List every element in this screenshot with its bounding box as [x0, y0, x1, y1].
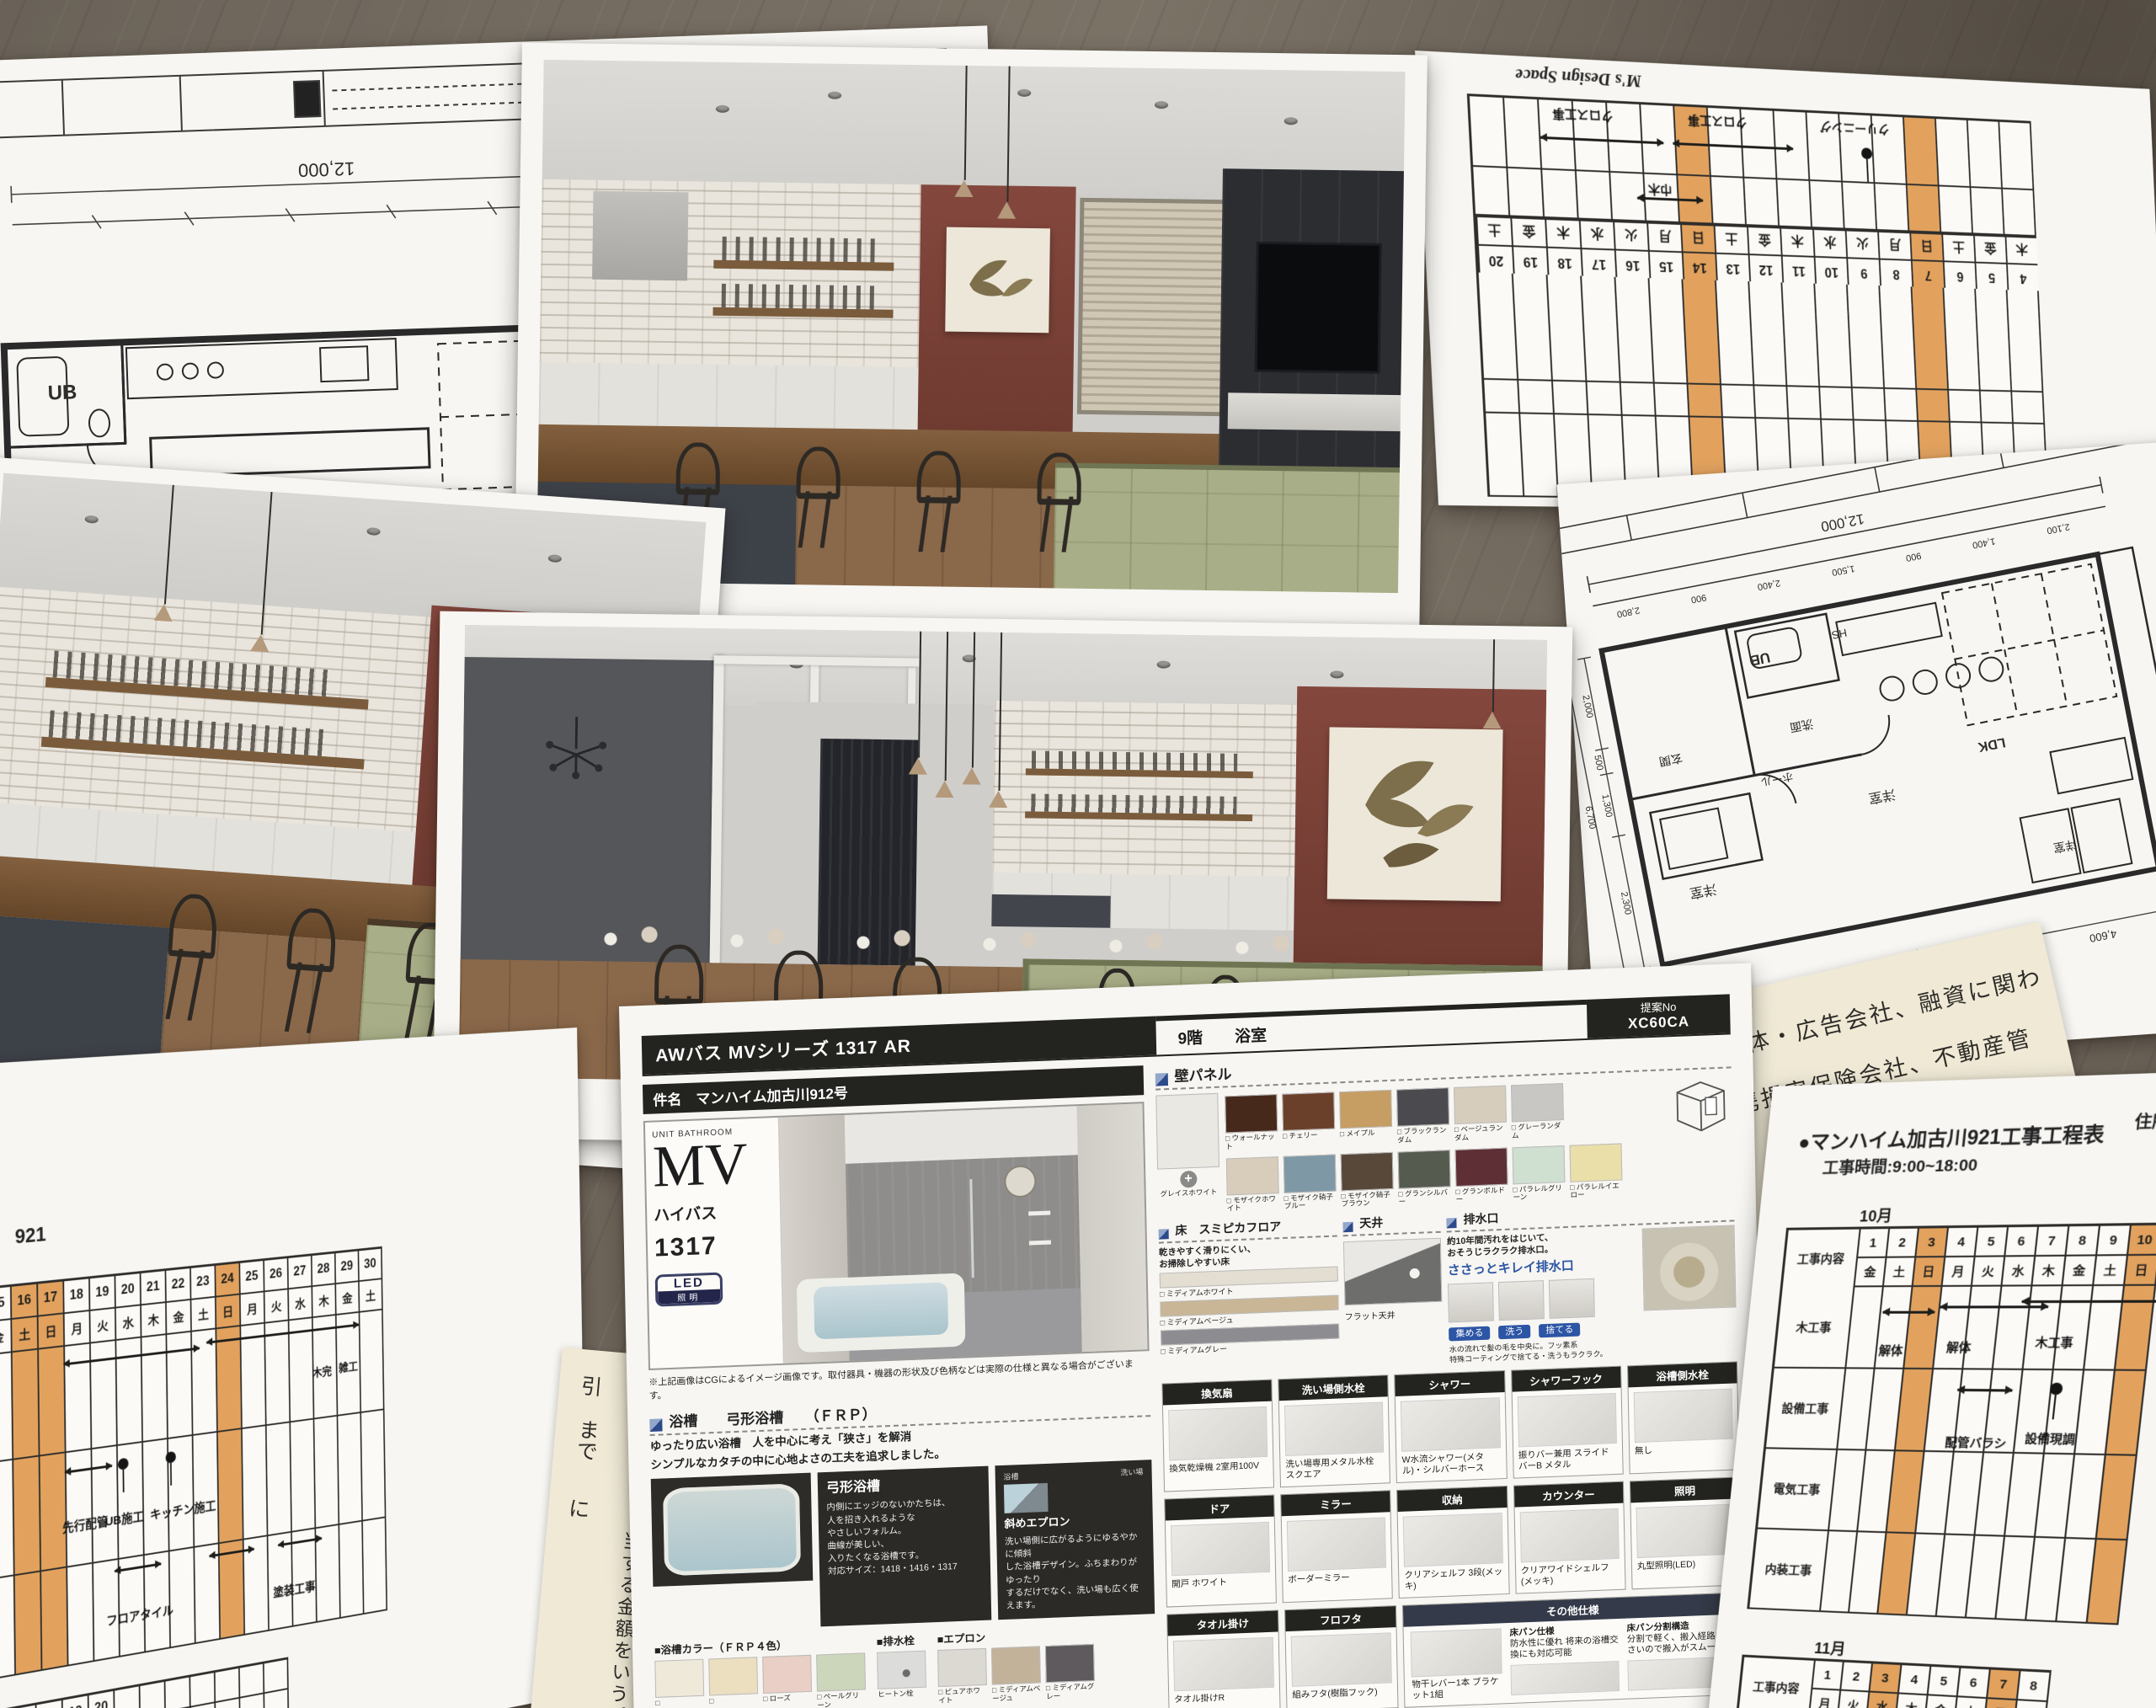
equipment-photo — [1636, 1504, 1735, 1558]
equipment-box: カウンター クリアワイドシェルフ (メッキ) — [1513, 1481, 1625, 1594]
drain-plug-group: ■排水栓 ヒートン栓 — [877, 1631, 927, 1708]
gantt-header-label: 工事内容 — [1738, 1657, 1816, 1708]
room-hs: HS — [1830, 627, 1848, 642]
apron-color-swatch: □ ミディアムグレー — [1045, 1644, 1095, 1701]
svg-text:500: 500 — [1592, 755, 1604, 771]
chandelier-icon — [537, 716, 614, 793]
schedule-hours: 工事時間:9:00~18:00 — [1822, 1152, 1979, 1179]
shelf-bottles — [721, 284, 876, 309]
svg-text:1,400: 1,400 — [1972, 536, 1996, 550]
wall-panel-swatch: □ グレーランダム — [1511, 1083, 1564, 1140]
equipment-box: ドア 開戸 ホワイト — [1164, 1495, 1277, 1608]
gantt-table-october: 15161718192021222324252627282930 金土日月火水木… — [0, 1246, 387, 1681]
room-wash: 洗面 — [1789, 717, 1815, 734]
section-bullet-icon — [649, 1418, 662, 1432]
wall-panel-swatch: □ ウォールナット — [1225, 1094, 1278, 1151]
wall-panel-swatch: □ モザイク硝子ブラウン — [1340, 1151, 1393, 1209]
floor-swatch: □ ミディアムベージュ — [1160, 1295, 1339, 1328]
equipment-photo — [1401, 1397, 1500, 1451]
equipment-photo — [1403, 1513, 1502, 1567]
chair — [1037, 452, 1082, 552]
shelf — [1028, 1240, 1050, 1245]
floor-swatch: □ ミディアムグレー — [1161, 1324, 1340, 1357]
gantt-table-november: 工事内容 12345678 月火水木金土日月 木工事 設備工事 電気工事 フロー… — [1711, 1655, 2052, 1708]
bathtub-color-swatch: □ — [708, 1657, 758, 1708]
schedule-address: 住所:加古川市別 — [2133, 1105, 2156, 1133]
equipment-box: 換気扇 換気乾燥機 2室用100V — [1161, 1379, 1274, 1492]
schedule-title: ●マンハイム加古川921工事工程表 — [1797, 1118, 2106, 1156]
svg-text:4,600: 4,600 — [2089, 927, 2118, 945]
room-ub: UB — [47, 381, 77, 404]
wall-panel-swatch: □ パラレルイエロー — [1569, 1143, 1622, 1200]
other-spec-box: その他仕様 物干レバー1本 ブラケット1組 床パン仕様 防水性に優れ 将来の浴槽… — [1402, 1593, 1744, 1708]
bathtub-color-swatch: □ ローズ — [762, 1655, 812, 1708]
dim-12000: 12,000 — [1820, 510, 1866, 535]
spec-proposal-no: 提案NoXC60CA — [1587, 994, 1731, 1038]
shelf — [1028, 1210, 1050, 1215]
bathroom-axon-icon — [1669, 1073, 1734, 1196]
equipment-photo — [1171, 1522, 1270, 1576]
spec-floor-room: 9階 浴室 — [1155, 1000, 1588, 1055]
leaf-artwork — [945, 227, 1049, 332]
drain-step-photo — [1549, 1278, 1595, 1319]
chair — [796, 446, 841, 548]
wall-panel-swatch: □ メイプル — [1339, 1090, 1392, 1147]
wall-panel-swatch: □ チェリー — [1282, 1092, 1335, 1149]
equipment-photo — [1284, 1401, 1384, 1455]
yellow-strip-fragment: 引 — [580, 1369, 604, 1401]
equipment-box: ミラー ボーダーミラー — [1280, 1490, 1393, 1603]
chair — [163, 893, 219, 1022]
apron-color-swatch: □ ミディアムベージュ — [991, 1647, 1041, 1704]
kitchen-cabinets — [539, 362, 919, 435]
schedule-sheet-bottom-left: 921 15161718192021222324252627282930 金土日… — [0, 1027, 588, 1708]
svg-text:1,300: 1,300 — [1599, 793, 1614, 818]
equipment-photo — [1287, 1517, 1386, 1571]
room-ldk: LDK — [1977, 734, 2007, 754]
mv-brand-block: UNIT BATHROOM MV ハイバス 1317 LED 照明 — [645, 1118, 784, 1369]
svg-text:1,500: 1,500 — [1831, 563, 1855, 578]
equipment-photo — [1517, 1393, 1616, 1447]
equipment-photo — [1173, 1637, 1275, 1692]
mv-logo: MV — [652, 1135, 772, 1196]
shelf-bottles — [722, 237, 877, 262]
chair — [282, 907, 338, 1035]
yellow-strip-fragment: まで — [569, 1417, 603, 1462]
svg-text:6,700: 6,700 — [1583, 805, 1598, 830]
plus-icon: + — [1180, 1171, 1197, 1188]
svg-text:2,000: 2,000 — [1580, 694, 1594, 718]
apron-color-group: ■エプロン □ ピュアホワイト □ ミディアムベージュ — [937, 1625, 1096, 1705]
bathtub-color-swatch: □ ペールグリーン — [816, 1653, 866, 1708]
drainage-section: 排水口 約10年間汚れをはじいて、おそうじラクラク排水口。 ささっとキレイ排水口 — [1446, 1200, 1737, 1365]
tv-board — [1228, 392, 1401, 431]
brand-text-upside-down: M's Design Space — [1515, 64, 1642, 91]
schedule-sheet-top-right-upside-down: M's Design Space 土金木水火月日土金木水火月日土金木 20191… — [1415, 51, 2156, 514]
bathroom-spec-sheet: AWバス MVシリーズ 1317 AR 9階 浴室 提案NoXC60CA 件名 … — [619, 963, 1767, 1708]
leaf-icon — [1334, 736, 1496, 893]
drain-step-photo — [1448, 1283, 1494, 1323]
wall-panel-swatch: □ モザイク硝子ブルー — [1283, 1154, 1337, 1211]
tatami-floor — [1054, 463, 1400, 593]
led-badge: LED 照明 — [655, 1272, 723, 1306]
room-west: 洋室 — [1867, 786, 1897, 806]
room-entry: 玄関 — [1658, 751, 1684, 769]
window-blinds — [1077, 198, 1230, 417]
leaf-artwork-large — [1327, 728, 1502, 902]
equipment-box: フロフタ 組みフタ(樹脂フック) — [1284, 1605, 1399, 1708]
drain-step-photo — [1498, 1280, 1545, 1321]
bathtub-info-panel: 弓形浴槽 内側にエッジのないかたちは、人を招き入れるようなやさしいフォルム。曲線… — [818, 1466, 991, 1627]
equipment-box: 洗い場側水栓 洗い場専用メタル水栓 スクエア — [1278, 1374, 1390, 1487]
range-hood — [592, 190, 688, 280]
spec-title: AWバス MVシリーズ 1317 AR — [642, 1017, 1156, 1075]
apron-color-swatch: □ ピュアホワイト — [937, 1648, 987, 1705]
bathtub-photo — [651, 1473, 814, 1587]
mv-product-box: UNIT BATHROOM MV ハイバス 1317 LED 照明 — [643, 1102, 1150, 1370]
apron-info-panel: 浴槽洗い場 斜めエプロン 洗い場側に広がるようにゆるやかに傾斜した浴槽デザイン。… — [995, 1460, 1155, 1620]
month-label-october: 10月 — [1859, 1204, 1893, 1227]
floor-section: 床 スミピカフロア 乾きやすく滑りにくい、お掃除しやすい床 □ ミディアムホワイ… — [1158, 1216, 1340, 1377]
tv-screen — [1255, 242, 1382, 374]
floor-swatch: □ ミディアムホワイト — [1159, 1267, 1338, 1300]
gantt-table-upside-down: 土金木水火月日土金木水火月日土金木 2019181716151413121110… — [1467, 93, 2049, 504]
room-west: 洋室 — [1689, 881, 1718, 901]
ceiling-section: 天井 フラット天井 — [1342, 1212, 1444, 1369]
section-bullet-icon — [1155, 1073, 1167, 1086]
wall-panel-swatch: □ ブラックランダム — [1396, 1087, 1449, 1145]
svg-text:2,800: 2,800 — [1616, 605, 1641, 619]
wall-panel-swatch: □ パラレルグリーン — [1512, 1145, 1565, 1203]
wall-main-swatch: + グレイスホワイト — [1155, 1093, 1220, 1216]
equipment-photo — [1291, 1633, 1393, 1688]
wall-panel-swatch: □ モザイクホワイト — [1226, 1156, 1279, 1214]
equipment-box: タオル掛け タオル掛けR — [1166, 1610, 1281, 1708]
yellow-strip-fragment: に — [568, 1492, 591, 1524]
leaf-icon — [950, 234, 1044, 325]
bathtub-color-group: ■浴槽カラー（ＦＲＰ４色） □ □ — [654, 1634, 867, 1708]
gantt-table-october: 工事内容 12345678910 金土日月火水木金土日 木工事 設備工事 電気工… — [1747, 1223, 2156, 1625]
chair — [916, 451, 962, 552]
room-ub: UB — [1748, 649, 1772, 669]
equipment-box: 収納 クリアシェルフ 3段(メッキ) — [1396, 1486, 1509, 1599]
title-fragment-921: 921 — [15, 1224, 46, 1250]
equipment-box: 浴槽側水栓 無し — [1627, 1361, 1740, 1474]
wall-panel-swatch: □ ベージュランダム — [1454, 1086, 1507, 1143]
svg-text:2,100: 2,100 — [2046, 521, 2070, 536]
equipment-photo — [1519, 1508, 1619, 1562]
room-west: 洋室 — [2052, 837, 2079, 855]
bathroom-cg-image — [779, 1103, 1148, 1364]
desk-photo-of-documents: 12,000 — [0, 0, 2156, 1708]
bathtub — [797, 1273, 965, 1353]
svg-text:900: 900 — [1690, 592, 1707, 605]
wall-panel-swatch: □ グランシルバー — [1397, 1150, 1450, 1207]
equipment-box: シャワーフック 振りバー兼用 スライドバーB メタル — [1511, 1365, 1624, 1478]
month-label-november: 11月 — [1813, 1636, 1847, 1660]
equipment-photo — [1168, 1406, 1267, 1460]
drain-plug-swatch: ヒートン栓 — [877, 1651, 926, 1700]
gantt-header-label: 工事内容 — [1782, 1230, 1860, 1289]
equipment-photo — [1633, 1388, 1732, 1442]
svg-text:900: 900 — [1905, 550, 1922, 563]
equipment-box: シャワー W水流シャワー(メタル)・シルバーホース — [1394, 1370, 1507, 1483]
drain-photo — [1642, 1225, 1737, 1310]
bathtub-color-swatch: □ — [654, 1659, 704, 1708]
svg-text:2,300: 2,300 — [1619, 891, 1633, 915]
svg-text:2,400: 2,400 — [1757, 578, 1781, 592]
wall-panel-swatch: □ グランボルドー — [1454, 1147, 1508, 1204]
dim-12000: 12,000 — [298, 158, 355, 181]
